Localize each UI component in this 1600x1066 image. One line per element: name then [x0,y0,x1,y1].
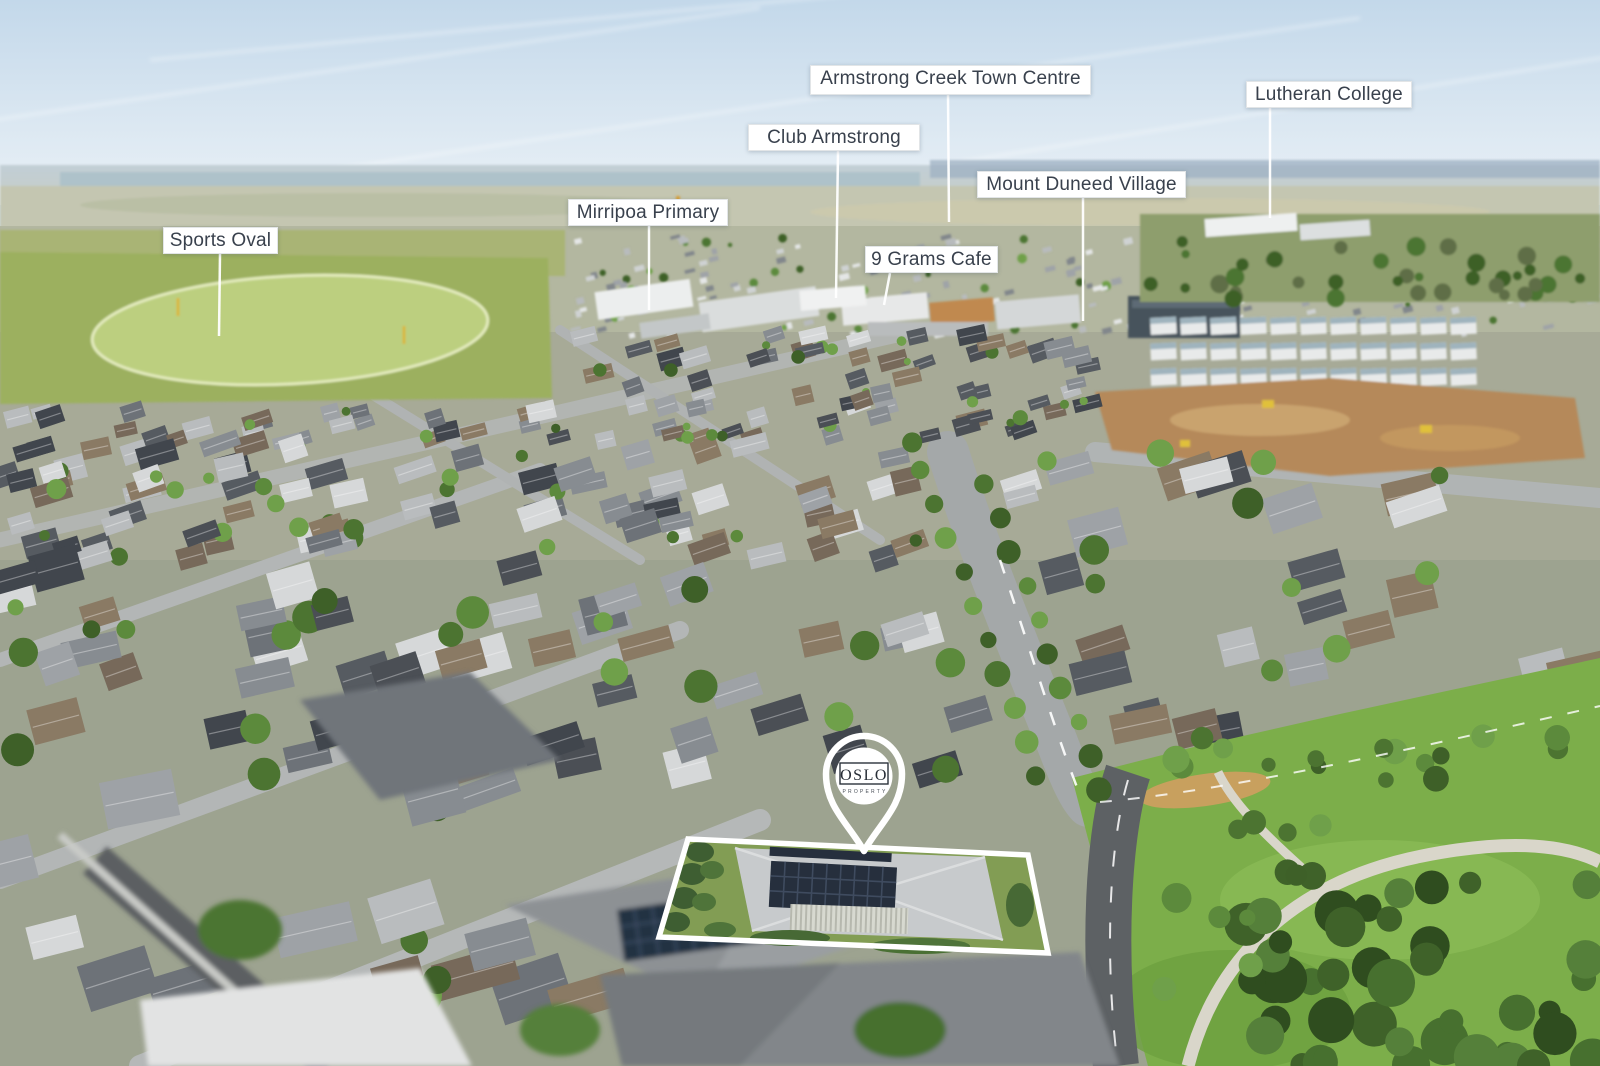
leader-line-sports-oval [219,254,220,336]
park-road [1108,772,1128,1066]
oslo-tagline-text: PROPERTY [842,789,887,795]
college-area [1140,213,1600,308]
property-boundary [659,839,1048,953]
oslo-brand-text: OSLO [840,767,888,784]
aerial-photo-scene: OSLO PROPERTY [0,0,1600,1066]
leader-line-armstrong-creek-town-centre [948,95,949,222]
aerial-photo: OSLO PROPERTY Sports OvalMirripoa Primar… [0,0,1600,1066]
sports-oval [0,230,565,404]
